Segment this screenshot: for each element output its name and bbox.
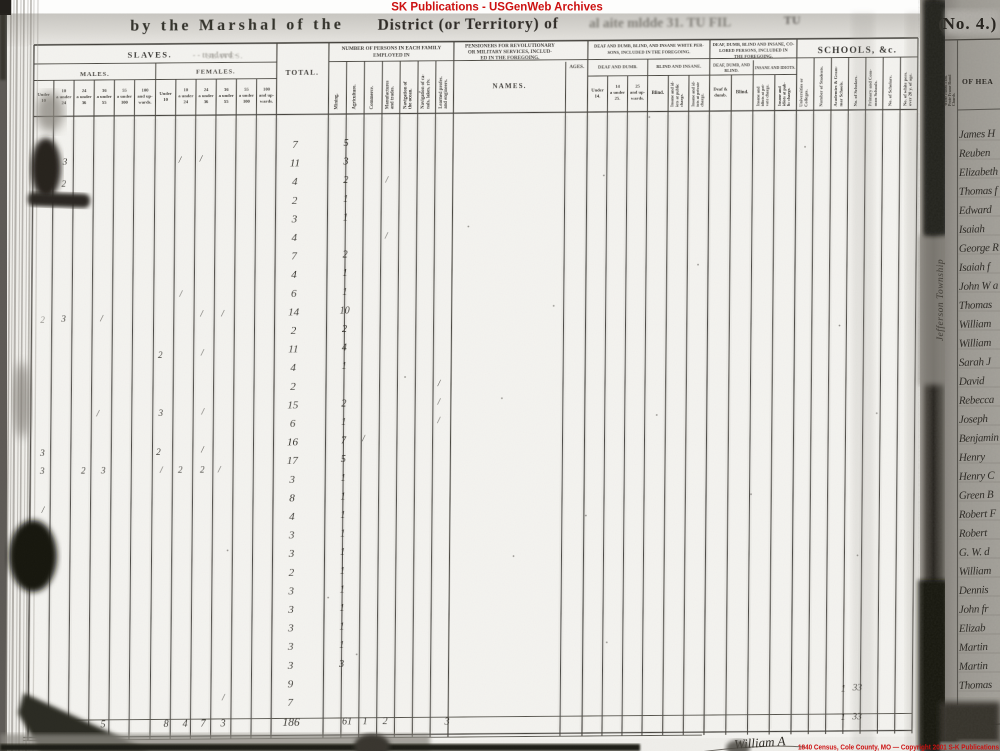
svg-text:SK Publications - USGenWeb Arc: SK Publications - USGenWeb Archives	[391, 2, 603, 14]
svg-text:1840 Census, Cole County, MO —: 1840 Census, Cole County, MO — Copyright…	[798, 743, 999, 751]
